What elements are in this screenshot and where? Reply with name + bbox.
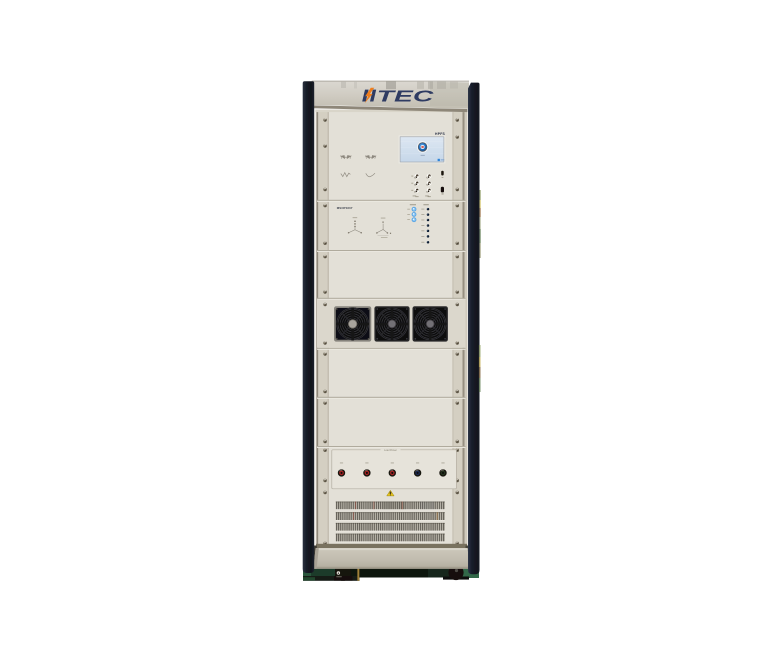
svg-text:MSOP1607: MSOP1607 — [337, 206, 353, 210]
svg-text:TEC: TEC — [377, 89, 435, 106]
svg-text:Load Power: Load Power — [384, 449, 397, 452]
